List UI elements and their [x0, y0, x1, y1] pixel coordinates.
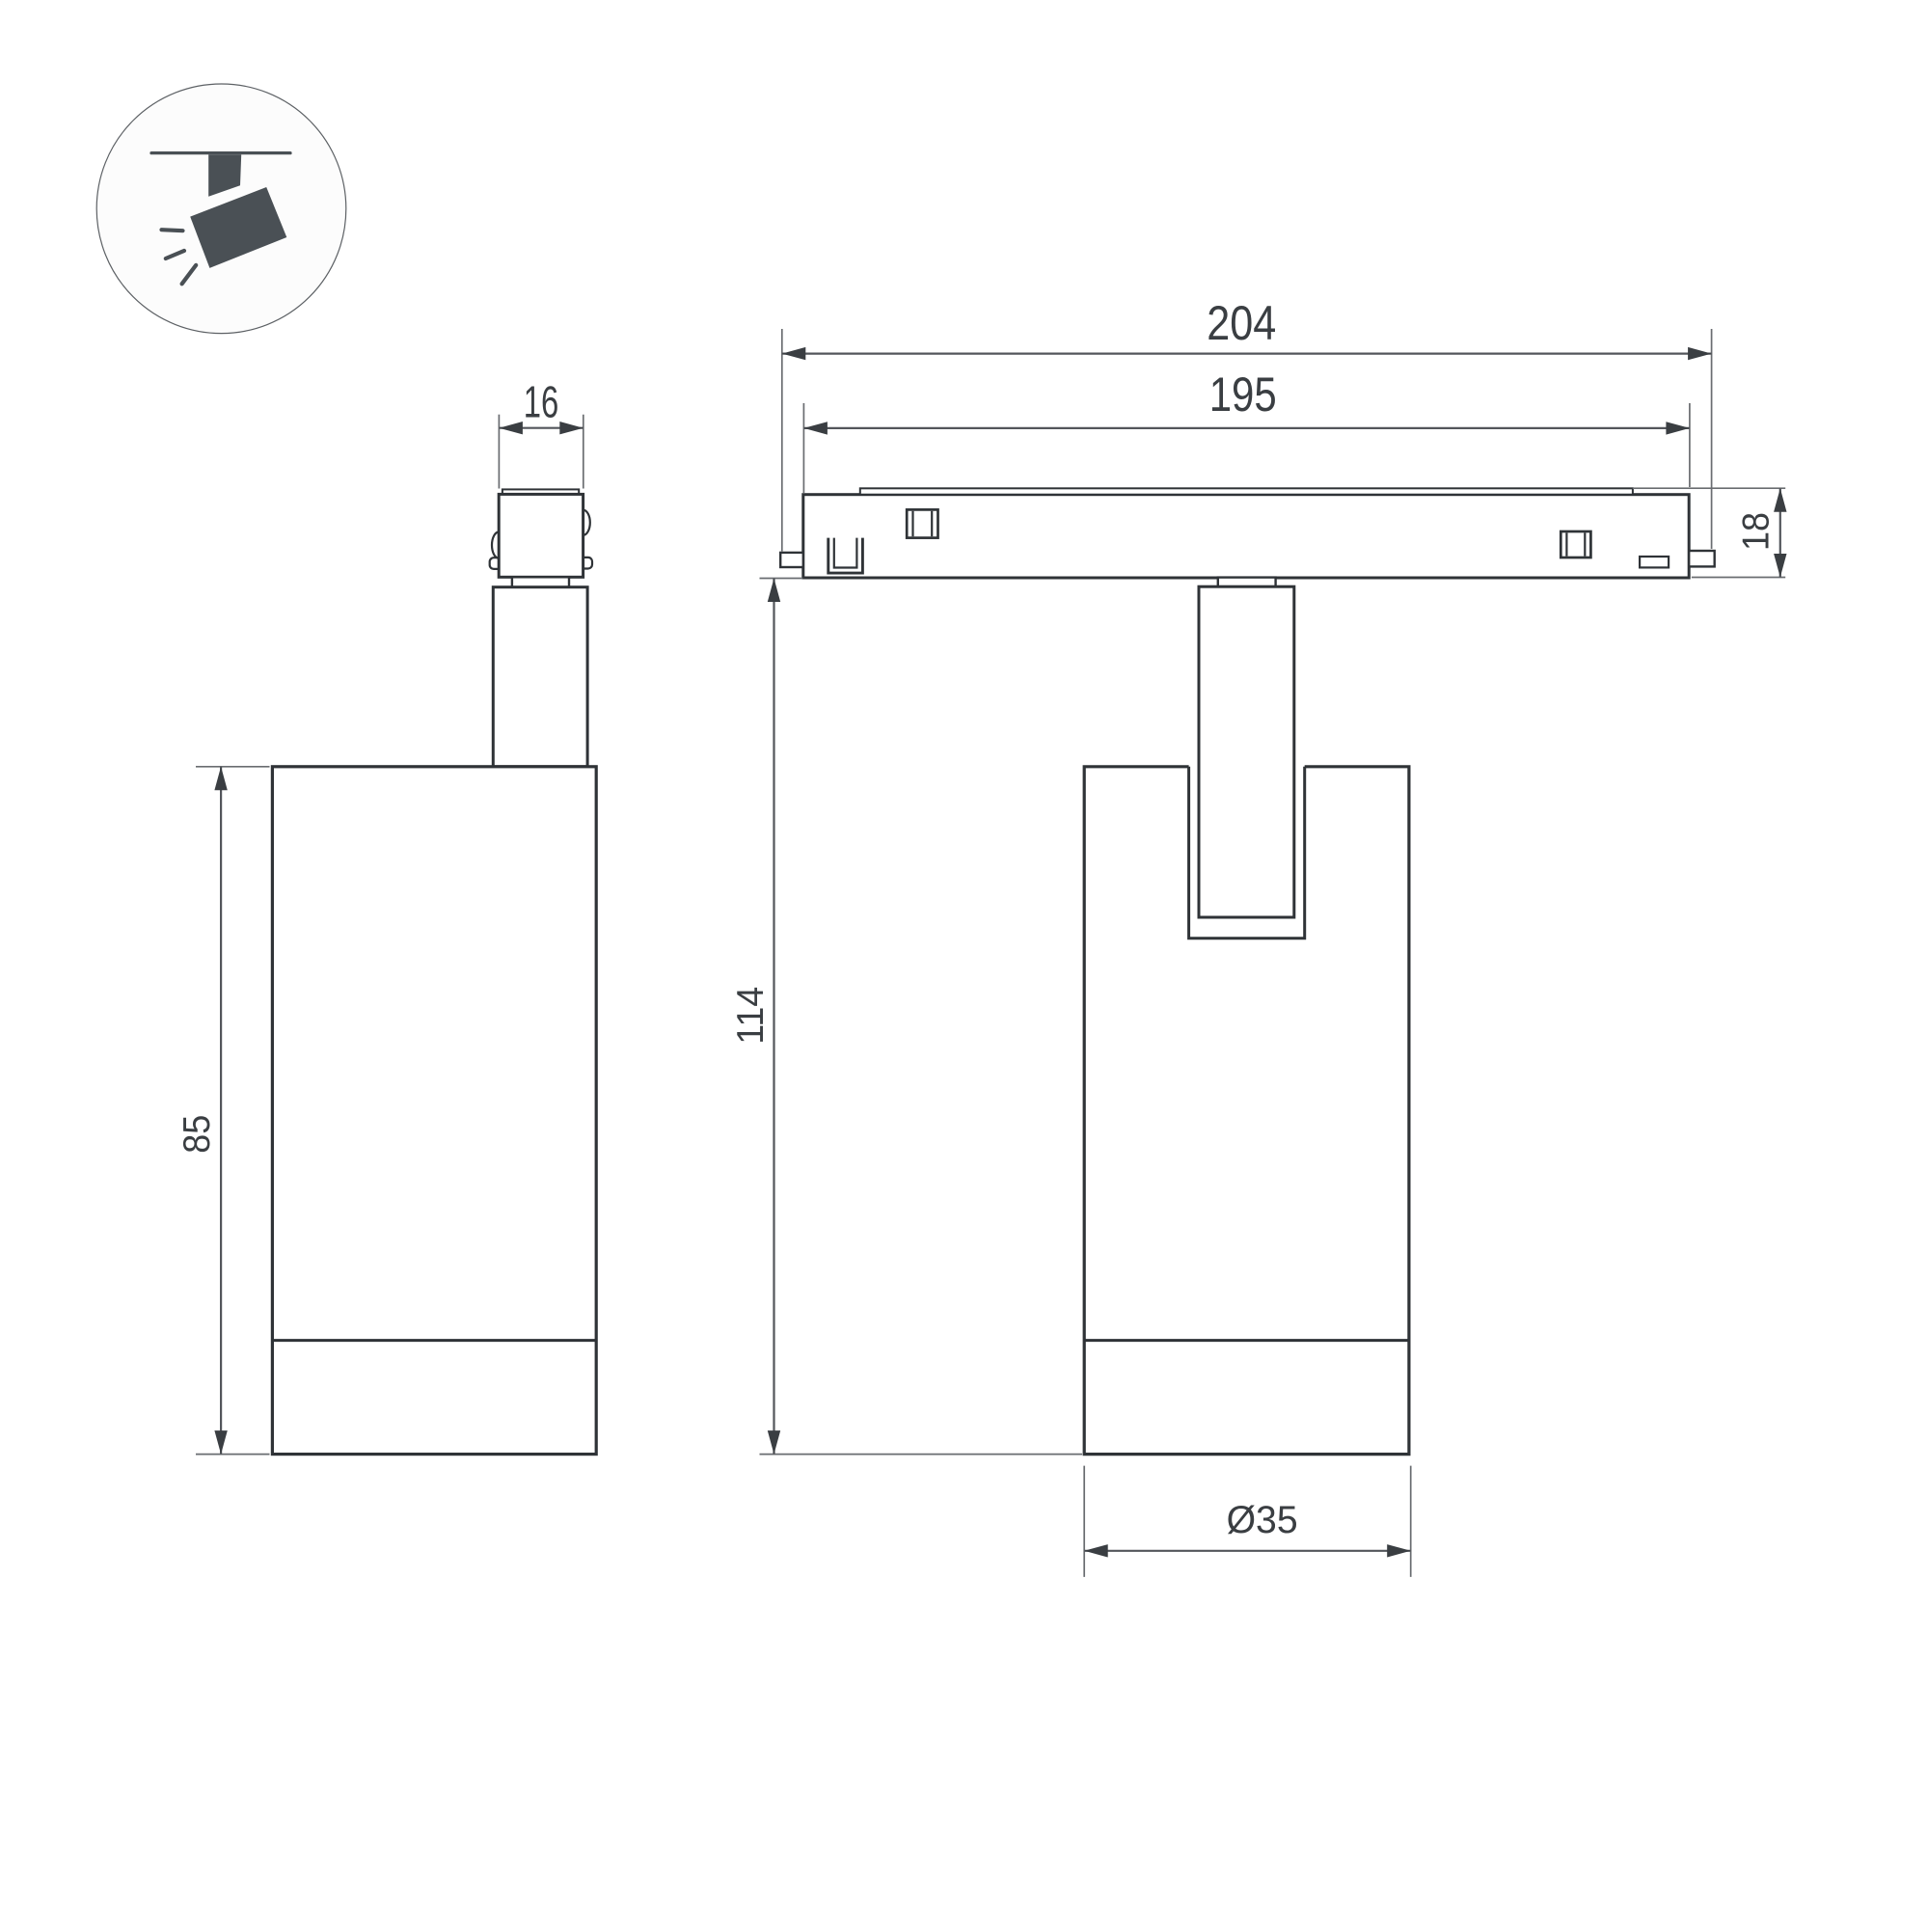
svg-text:18: 18 — [1736, 512, 1778, 551]
svg-text:204: 204 — [1207, 296, 1276, 350]
svg-text:85: 85 — [176, 1115, 218, 1154]
svg-text:195: 195 — [1209, 367, 1277, 422]
svg-text:Ø35: Ø35 — [1227, 1499, 1298, 1541]
svg-text:16: 16 — [524, 377, 559, 427]
svg-text:114: 114 — [730, 987, 772, 1045]
